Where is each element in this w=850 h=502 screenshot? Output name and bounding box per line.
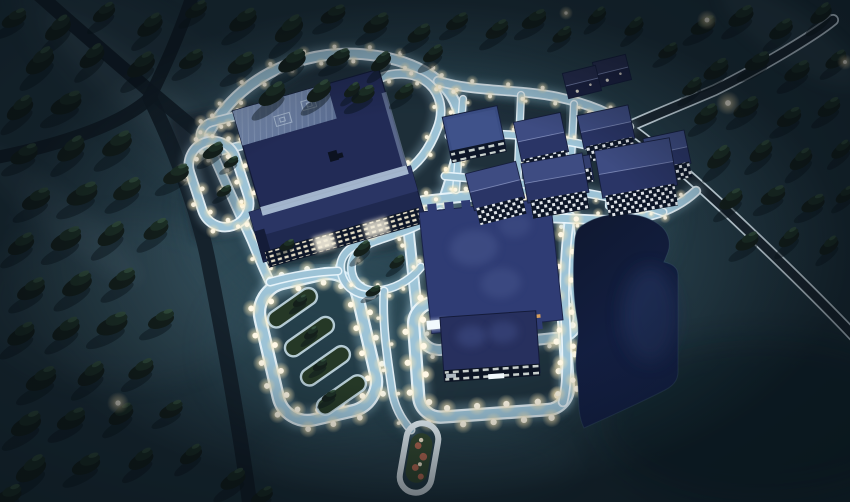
vignette <box>0 0 850 502</box>
night-campus-scene[interactable] <box>0 0 850 502</box>
game-viewport[interactable] <box>0 0 850 502</box>
